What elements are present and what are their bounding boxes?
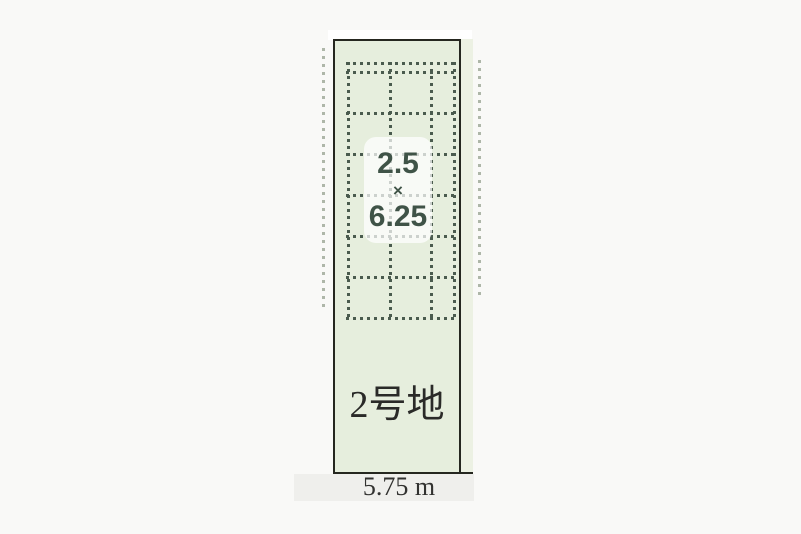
multiply-icon: ×: [393, 180, 403, 201]
plot-name: 2号地: [333, 385, 461, 425]
plot-border-top: [333, 39, 461, 41]
plot-size-label: 2.5 × 6.25: [364, 137, 432, 243]
frontage-strip: 5.75 m: [294, 474, 474, 501]
frontage-measurement: 5.75 m: [294, 472, 474, 502]
plot-depth-value: 6.25: [369, 201, 427, 233]
plot-map-canvas: 2.5 × 6.25 2号地 5.75 m: [0, 0, 801, 534]
grid-line-vertical-faded: [322, 48, 325, 312]
plot-width-value: 2.5: [377, 148, 419, 180]
plot-right-light-strip: [461, 39, 473, 472]
grid-line-vertical-faded: [478, 60, 481, 300]
